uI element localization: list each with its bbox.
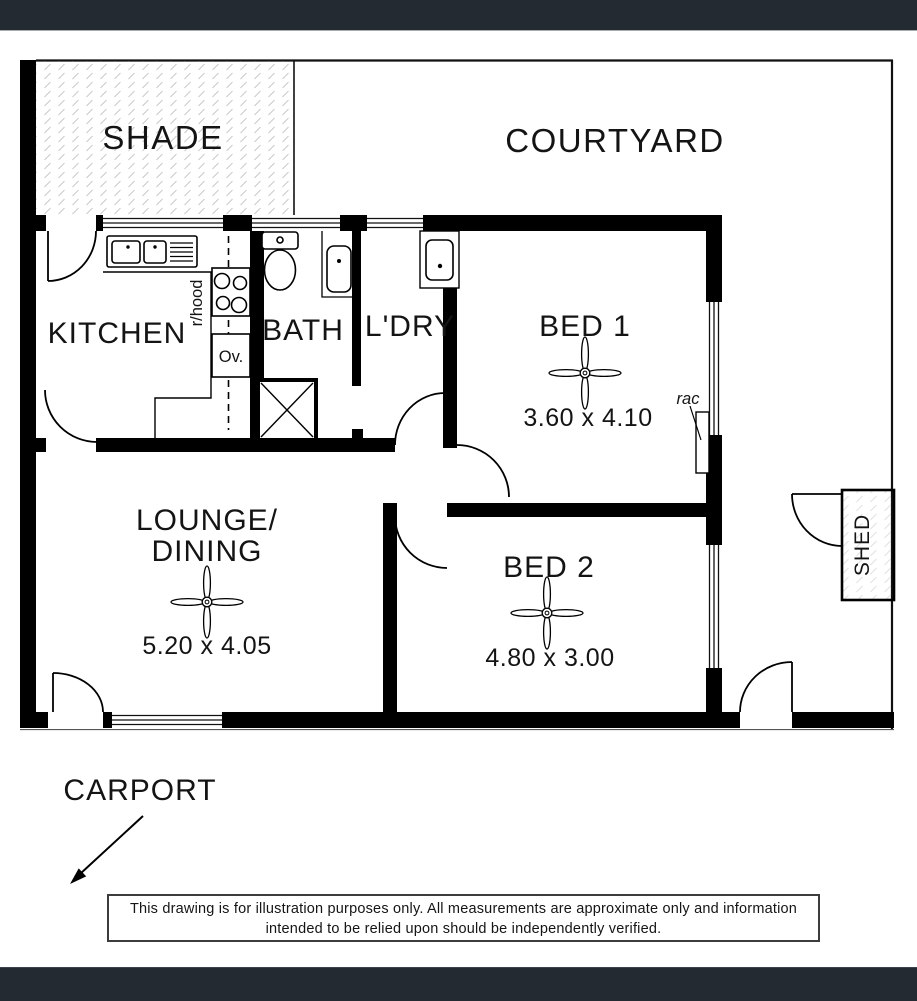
kitchen-sink-icon xyxy=(107,236,197,267)
laundry-trough-icon xyxy=(420,231,459,288)
window-icon xyxy=(112,712,222,728)
basin-icon xyxy=(327,246,351,292)
bath-label: BATH xyxy=(262,314,344,347)
bed1-label: BED 1 xyxy=(539,310,631,343)
bottom-frame-bar xyxy=(0,967,917,1001)
shade-label: SHADE xyxy=(102,119,223,156)
door-arc-icon xyxy=(395,516,447,568)
disclaimer-box: This drawing is for illustration purpose… xyxy=(107,894,820,942)
window-icon xyxy=(706,545,722,668)
disclaimer-line1: This drawing is for illustration purpose… xyxy=(109,899,818,919)
door-arc-icon xyxy=(740,662,792,712)
lounge-label-line1: LOUNGE/ xyxy=(136,504,278,537)
door-arc-icon xyxy=(457,445,509,497)
door-arc-icon xyxy=(48,231,96,281)
window-icon xyxy=(367,215,423,231)
door-arc-icon xyxy=(792,494,842,546)
window-icon xyxy=(252,215,340,231)
courtyard-label: COURTYARD xyxy=(505,122,724,159)
oven-label: Ov. xyxy=(219,348,243,366)
door-arc-icon xyxy=(395,393,445,445)
shower-icon xyxy=(258,380,316,440)
lounge-label-line2: DINING xyxy=(152,535,263,568)
floor-plan: SHADE COURTYARD KITCHEN BATH L'DRY BED 1… xyxy=(0,0,917,967)
wall-lounge-bed2 xyxy=(383,503,397,728)
door-arc-icon xyxy=(53,673,103,712)
laundry-label: L'DRY xyxy=(365,310,455,343)
ceiling-fan-icon xyxy=(549,337,621,409)
door-arc-icon xyxy=(45,390,97,442)
toilet-icon xyxy=(262,232,298,290)
bed2-dimensions: 4.80 x 3.00 xyxy=(485,644,614,672)
carport-label: CARPORT xyxy=(63,774,216,807)
bed2-label: BED 2 xyxy=(503,551,595,584)
disclaimer-line2: intended to be relied upon should be ind… xyxy=(109,919,818,939)
wall-bottom xyxy=(222,712,740,728)
lounge-dimensions: 5.20 x 4.05 xyxy=(142,632,271,660)
ceiling-fan-icon xyxy=(511,577,583,649)
bed1-dimensions: 3.60 x 4.10 xyxy=(523,404,652,432)
wall-left xyxy=(20,60,36,728)
wall-bed1-bed2 xyxy=(447,503,722,517)
wall-bath-laundry xyxy=(352,231,361,386)
air-conditioner-icon xyxy=(690,406,709,473)
shed-label: SHED xyxy=(851,514,874,576)
ceiling-fan-icon xyxy=(171,566,243,638)
arrow-icon xyxy=(70,816,143,884)
wall-top-bed1 xyxy=(423,215,722,231)
window-icon xyxy=(103,215,223,231)
wall-kitchen-lounge xyxy=(96,438,395,452)
rangehood-label: r/hood xyxy=(188,280,206,327)
kitchen-label: KITCHEN xyxy=(48,317,187,350)
cooktop-icon xyxy=(212,268,250,316)
rac-label: rac xyxy=(677,390,701,408)
